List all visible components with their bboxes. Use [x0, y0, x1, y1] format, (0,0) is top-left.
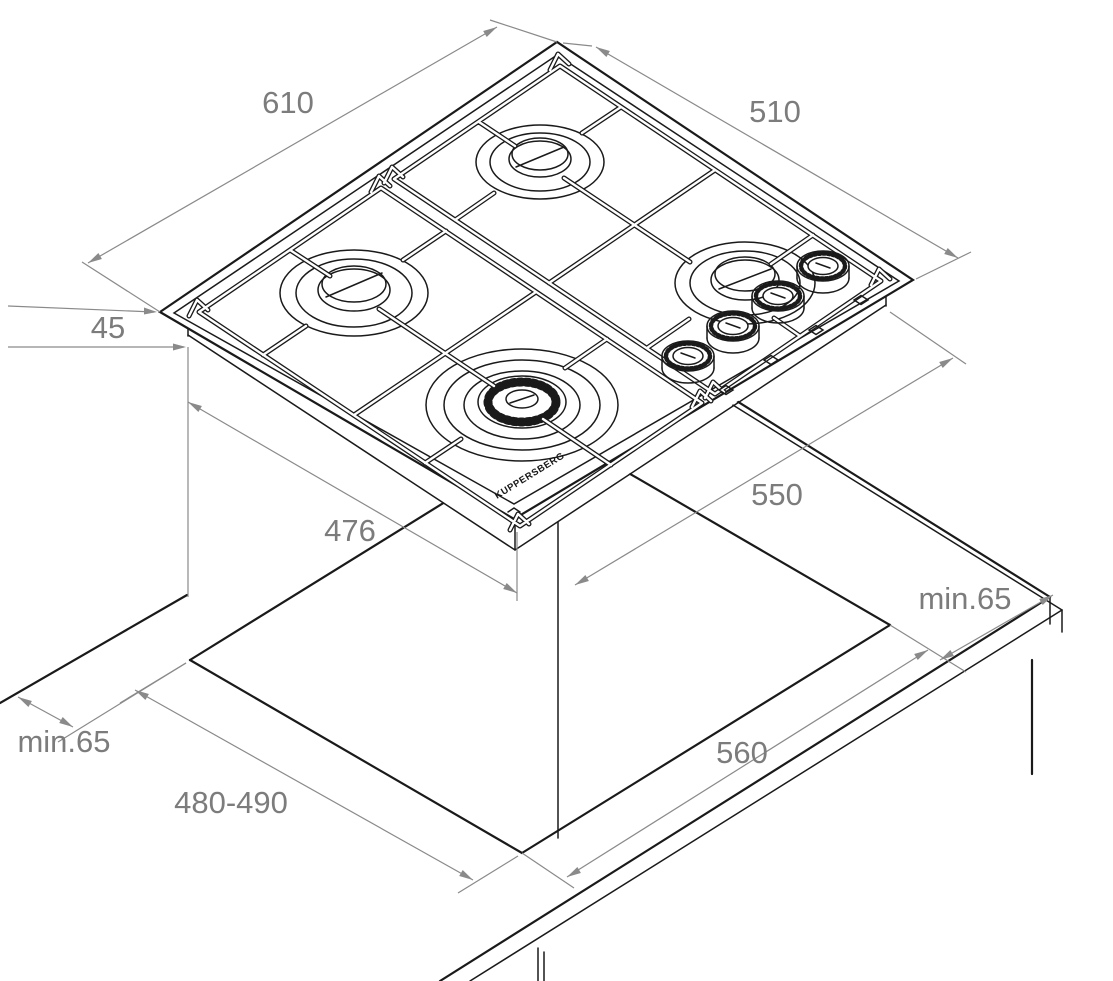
label-cutout-depth: 480-490	[174, 785, 288, 820]
cutout-bottom-right-edge	[522, 625, 890, 853]
dimension-cutout-depth	[120, 663, 518, 893]
cutout-bottom-left-edge	[190, 660, 522, 853]
label-hob-depth: 510	[749, 94, 801, 129]
worktop-back-edge	[0, 595, 187, 703]
worktop-front-top-edge	[440, 597, 1050, 981]
label-hob-height: 45	[91, 310, 125, 345]
worktop-front-bottom-edge	[470, 610, 1062, 981]
label-worktop-depth-to-cutout: 550	[751, 477, 803, 512]
label-hob-width: 610	[262, 85, 314, 120]
label-rear-clearance: min.65	[17, 724, 110, 759]
label-hob-body-width: 476	[324, 513, 376, 548]
label-side-clearance: min.65	[918, 581, 1011, 616]
installation-diagram: KUPPERSBERG 610 510 45 476 550 min.65	[0, 0, 1113, 981]
diagram-canvas: KUPPERSBERG 610 510 45 476 550 min.65	[0, 0, 1113, 981]
label-cutout-width: 560	[716, 735, 768, 770]
